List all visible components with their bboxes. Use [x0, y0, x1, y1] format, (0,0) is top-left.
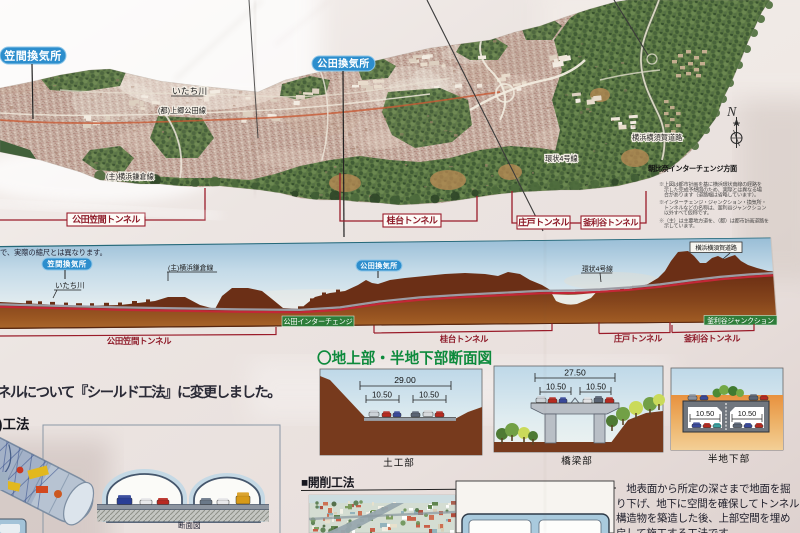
svg-text:29.00: 29.00 [394, 375, 416, 385]
svg-text:(都)上郷公田線: (都)上郷公田線 [158, 106, 206, 115]
svg-text:公田笠間トンネル: 公田笠間トンネル [72, 214, 140, 225]
svg-text:10.50: 10.50 [696, 409, 715, 418]
svg-text:朝比奈インターチェンジ方面: 朝比奈インターチェンジ方面 [648, 164, 737, 173]
svg-text:公田インターチェンジ: 公田インターチェンジ [284, 317, 353, 326]
svg-text:10.50: 10.50 [419, 391, 440, 400]
svg-text:土工部: 土工部 [383, 457, 415, 469]
svg-text:横浜横須賀道路: 横浜横須賀道路 [695, 244, 737, 252]
svg-text:橋梁部: 橋梁部 [561, 455, 593, 467]
svg-text:10.50: 10.50 [546, 383, 567, 392]
svg-text:構造物を築造した後、上部空間を埋め: 構造物を築造した後、上部空間を埋め [616, 512, 790, 525]
svg-text:釜利谷トンネル: 釜利谷トンネル [683, 334, 741, 344]
svg-text:釜利谷トンネル: 釜利谷トンネル [582, 218, 639, 228]
svg-text:■開削工法: ■開削工法 [301, 476, 355, 490]
svg-text:ネルについて『シールド工法』に変更しました。: ネルについて『シールド工法』に変更しました。 [0, 383, 280, 401]
svg-text:桂台トンネル: 桂台トンネル [439, 334, 489, 344]
svg-text:庄戸トンネル: 庄戸トンネル [518, 217, 569, 228]
svg-text:地表面から所定の深さまで地面を掘: 地表面から所定の深さまで地面を掘 [616, 482, 790, 495]
svg-text:庄戸トンネル: 庄戸トンネル [614, 334, 663, 344]
svg-text:笠間換気所: 笠間換気所 [3, 48, 62, 62]
svg-text:27.50: 27.50 [564, 368, 586, 378]
svg-text:環状4号線: 環状4号線 [582, 264, 613, 273]
svg-text:半地下部: 半地下部 [708, 453, 750, 465]
svg-text:桂台トンネル: 桂台トンネル [386, 215, 438, 226]
svg-text:断面図: 断面図 [178, 520, 201, 530]
svg-text:いたち川: いたち川 [172, 86, 207, 96]
svg-text:環状4号線: 環状4号線 [545, 154, 578, 163]
svg-text:横浜横須賀道路: 横浜横須賀道路 [632, 133, 682, 142]
svg-text:釜利谷ジャンクション: 釜利谷ジャンクション [707, 316, 774, 325]
svg-text:10.50: 10.50 [372, 391, 393, 400]
svg-text:10.50: 10.50 [586, 383, 607, 392]
svg-text:10.50: 10.50 [738, 409, 757, 418]
svg-text:で、実際の縮尺とは異なります。: で、実際の縮尺とは異なります。 [0, 248, 107, 257]
svg-text:笠間換気所: 笠間換気所 [46, 260, 87, 269]
svg-text:公田換気所: 公田換気所 [360, 261, 398, 270]
svg-text:〇地上部・半地下部断面図: 〇地上部・半地下部断面図 [317, 349, 492, 367]
svg-text:合があります（道路幅は省略しています）。: 合があります（道路幅は省略しています）。 [659, 191, 759, 199]
svg-text:N: N [726, 105, 737, 120]
svg-text:)工法: )工法 [0, 416, 30, 432]
svg-text:以外すべて仮称です。: 以外すべて仮称です。 [659, 209, 712, 217]
svg-text:公田換気所: 公田換気所 [317, 57, 370, 70]
svg-text:(主)横浜鎌倉線: (主)横浜鎌倉線 [106, 172, 154, 181]
svg-text:いたち川: いたち川 [55, 281, 85, 290]
svg-text:示しています。: 示しています。 [659, 223, 697, 230]
svg-text:公田笠間トンネル: 公田笠間トンネル [107, 336, 172, 346]
svg-text:(主)横浜鎌倉線: (主)横浜鎌倉線 [168, 263, 214, 272]
svg-text:り下げ、地下に空間を確保してトンネル: り下げ、地下に空間を確保してトンネル [616, 497, 799, 510]
svg-text:戻して施工する工法です。: 戻して施工する工法です。 [616, 526, 738, 533]
